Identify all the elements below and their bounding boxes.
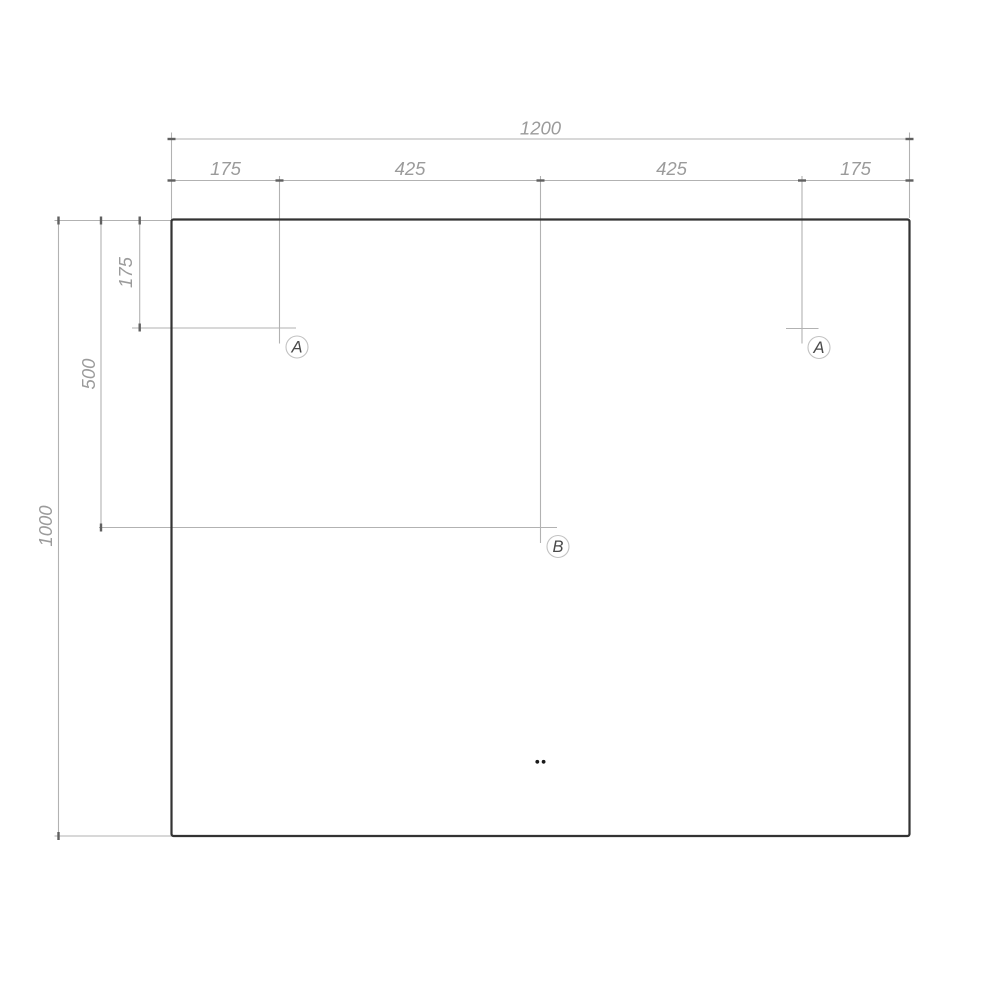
svg-text:425: 425 <box>656 158 688 179</box>
svg-text:175: 175 <box>840 158 872 179</box>
svg-text:A: A <box>290 339 302 357</box>
svg-text:500: 500 <box>78 358 99 390</box>
svg-text:175: 175 <box>210 158 242 179</box>
svg-text:1200: 1200 <box>520 118 562 139</box>
svg-text:1000: 1000 <box>35 505 56 547</box>
svg-text:A: A <box>812 339 824 357</box>
svg-text:425: 425 <box>395 158 427 179</box>
svg-text:175: 175 <box>115 256 136 288</box>
svg-text:B: B <box>552 538 563 556</box>
